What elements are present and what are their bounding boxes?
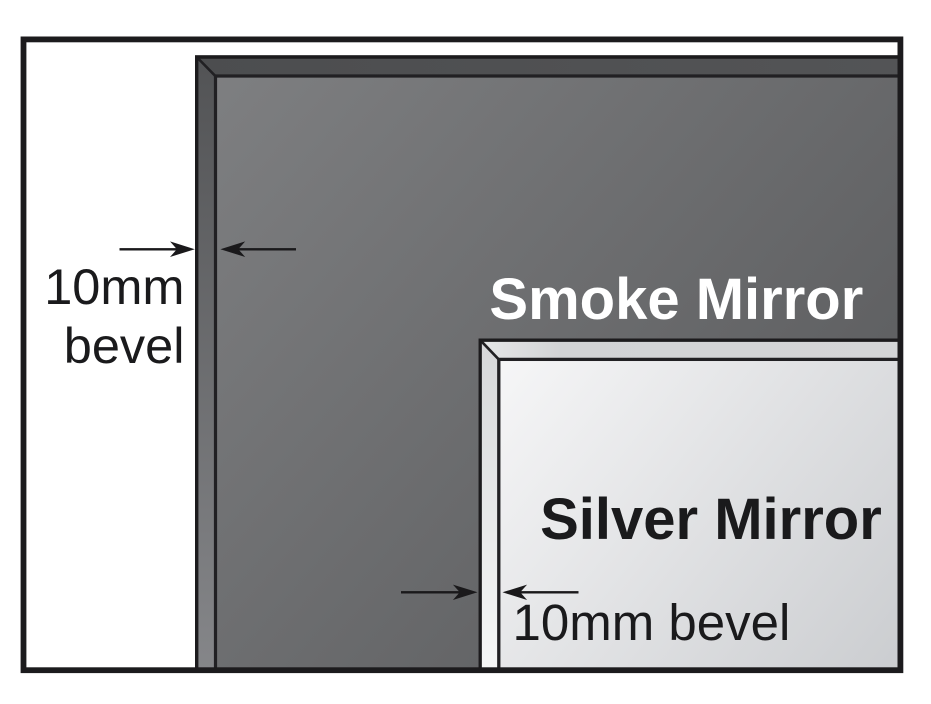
svg-text:Smoke Mirror: Smoke Mirror bbox=[489, 267, 863, 332]
svg-text:Silver Mirror: Silver Mirror bbox=[540, 487, 882, 552]
svg-text:10mm: 10mm bbox=[44, 258, 184, 315]
svg-text:bevel: bevel bbox=[64, 317, 185, 374]
svg-text:10mm bevel: 10mm bevel bbox=[513, 594, 791, 651]
